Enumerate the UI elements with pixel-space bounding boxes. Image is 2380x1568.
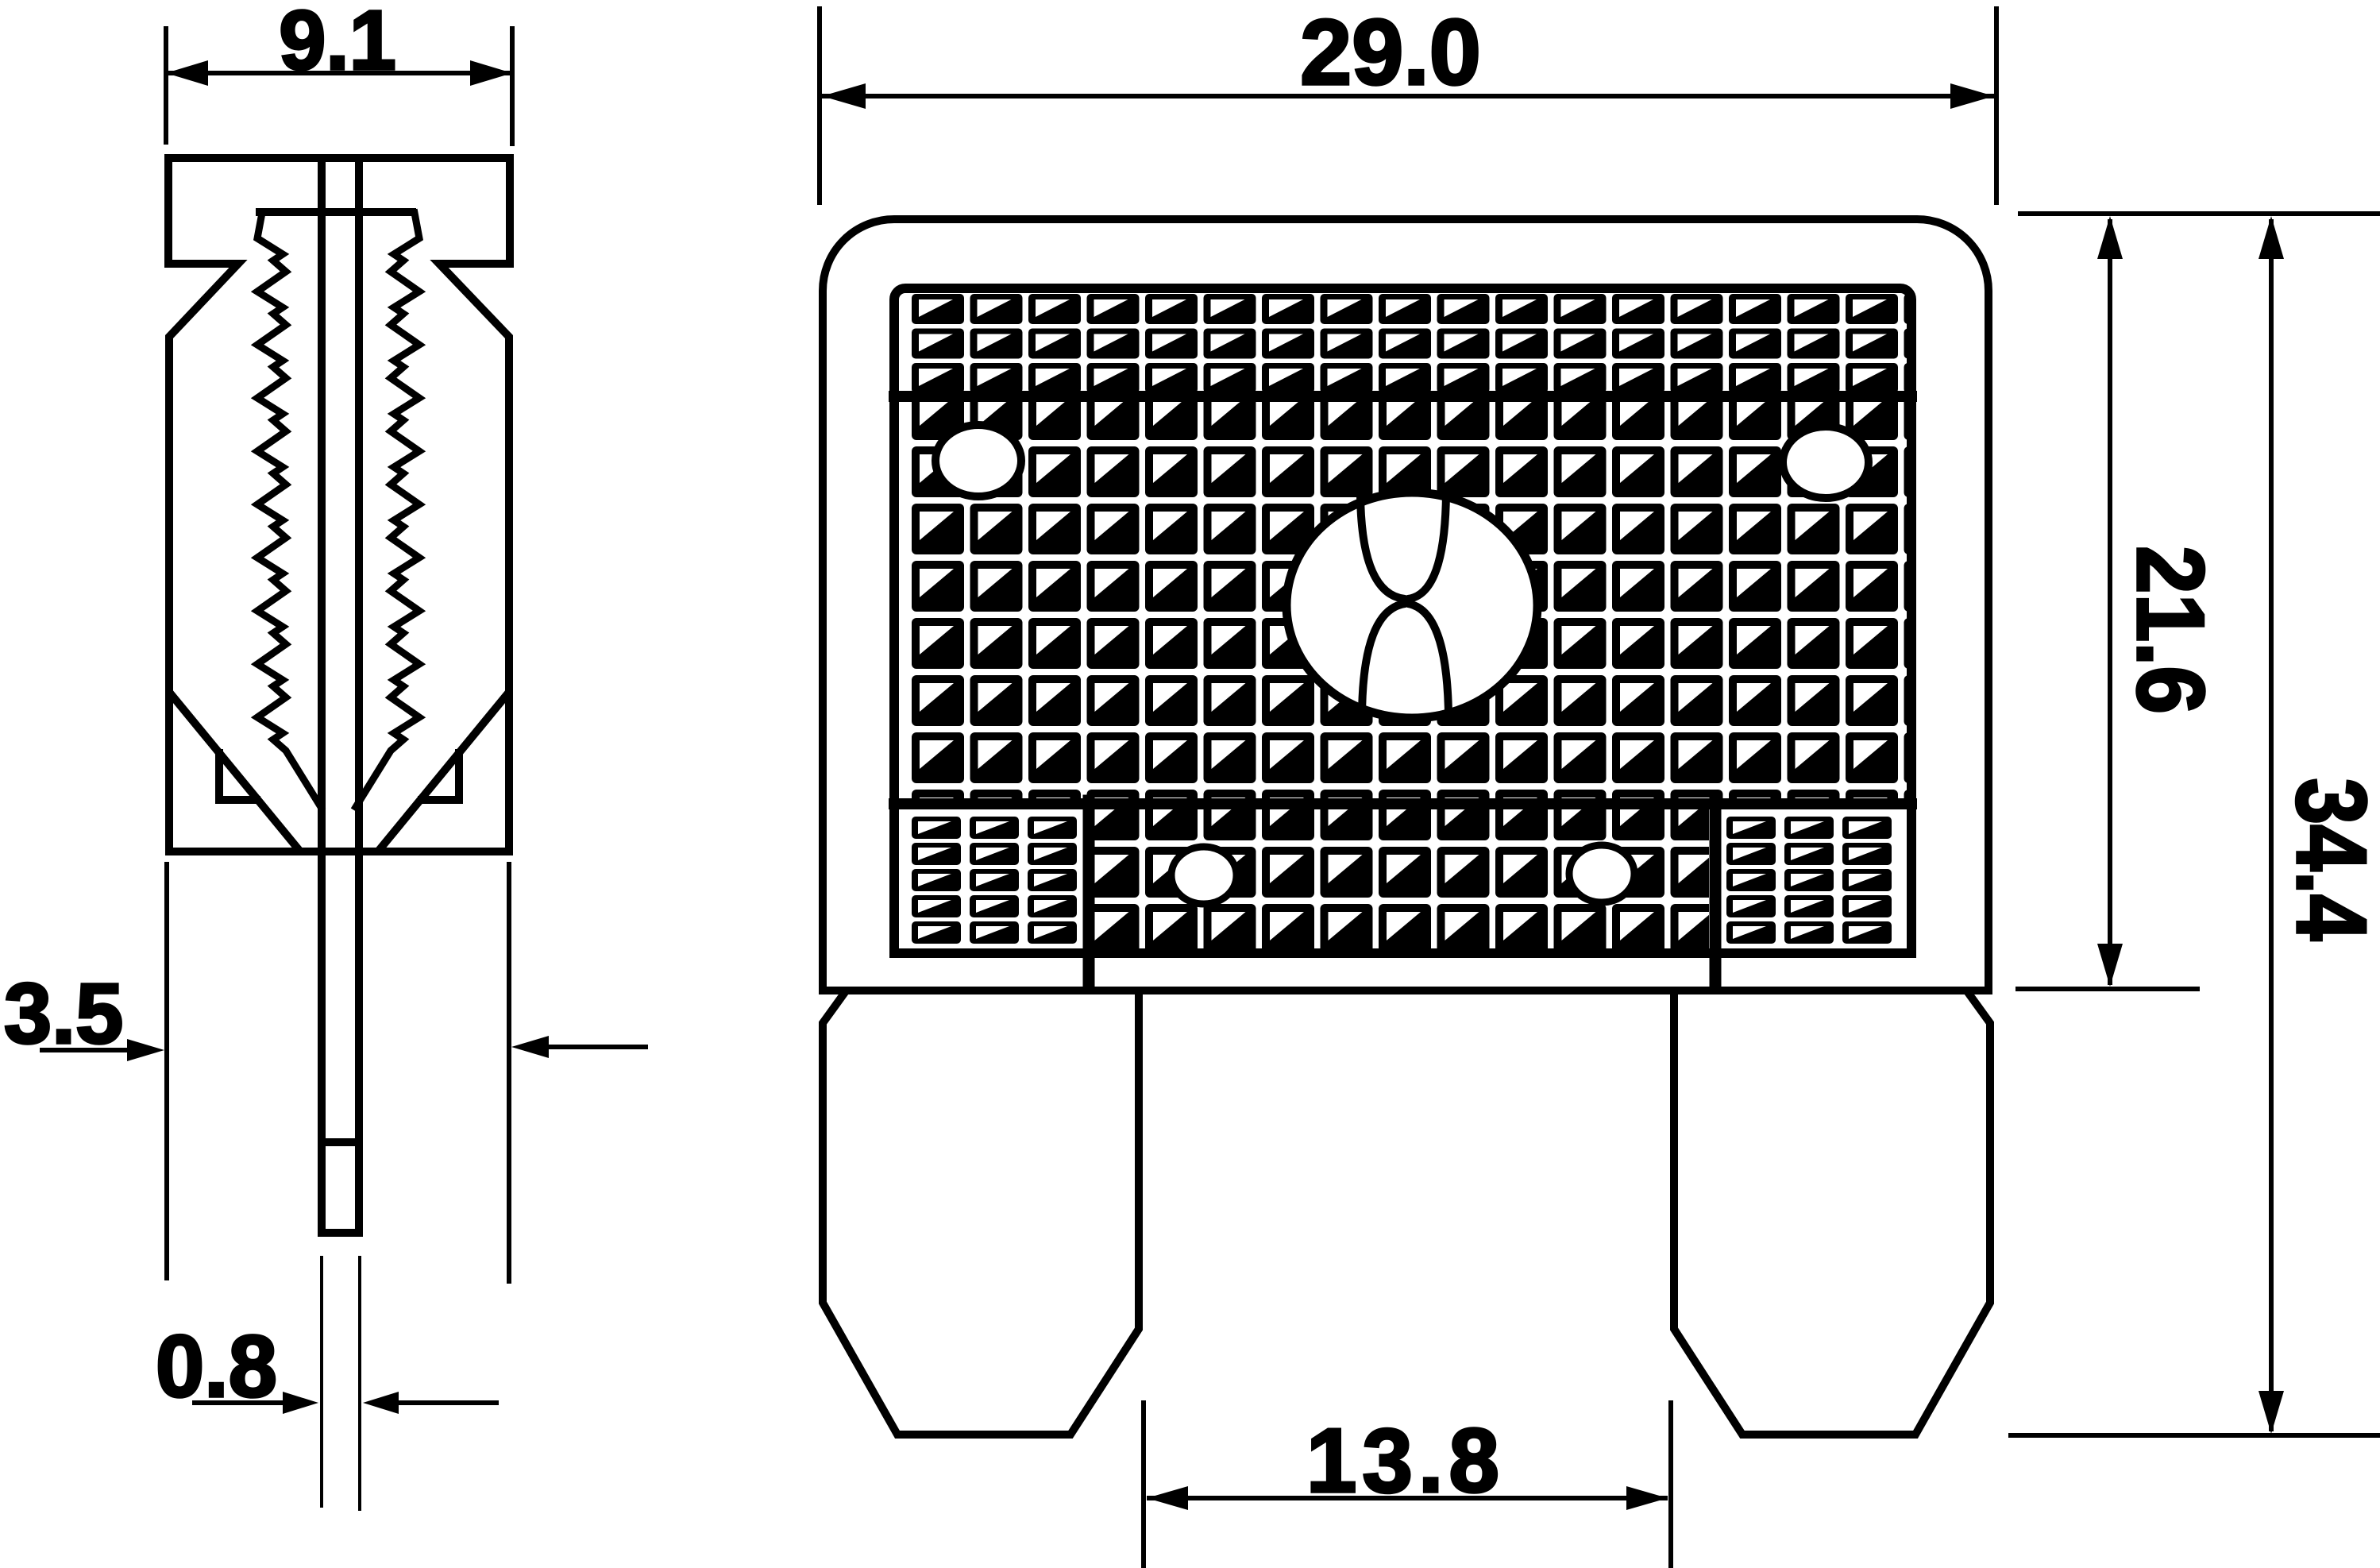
- svg-text:13.8: 13.8: [1306, 1411, 1505, 1512]
- svg-text:29.0: 29.0: [1300, 0, 1481, 104]
- svg-text:21.6: 21.6: [2117, 546, 2224, 714]
- svg-text:3.5: 3.5: [4, 965, 123, 1061]
- svg-text:34.4: 34.4: [2276, 778, 2380, 941]
- svg-text:9.1: 9.1: [279, 0, 395, 87]
- svg-text:0.8: 0.8: [156, 1318, 277, 1415]
